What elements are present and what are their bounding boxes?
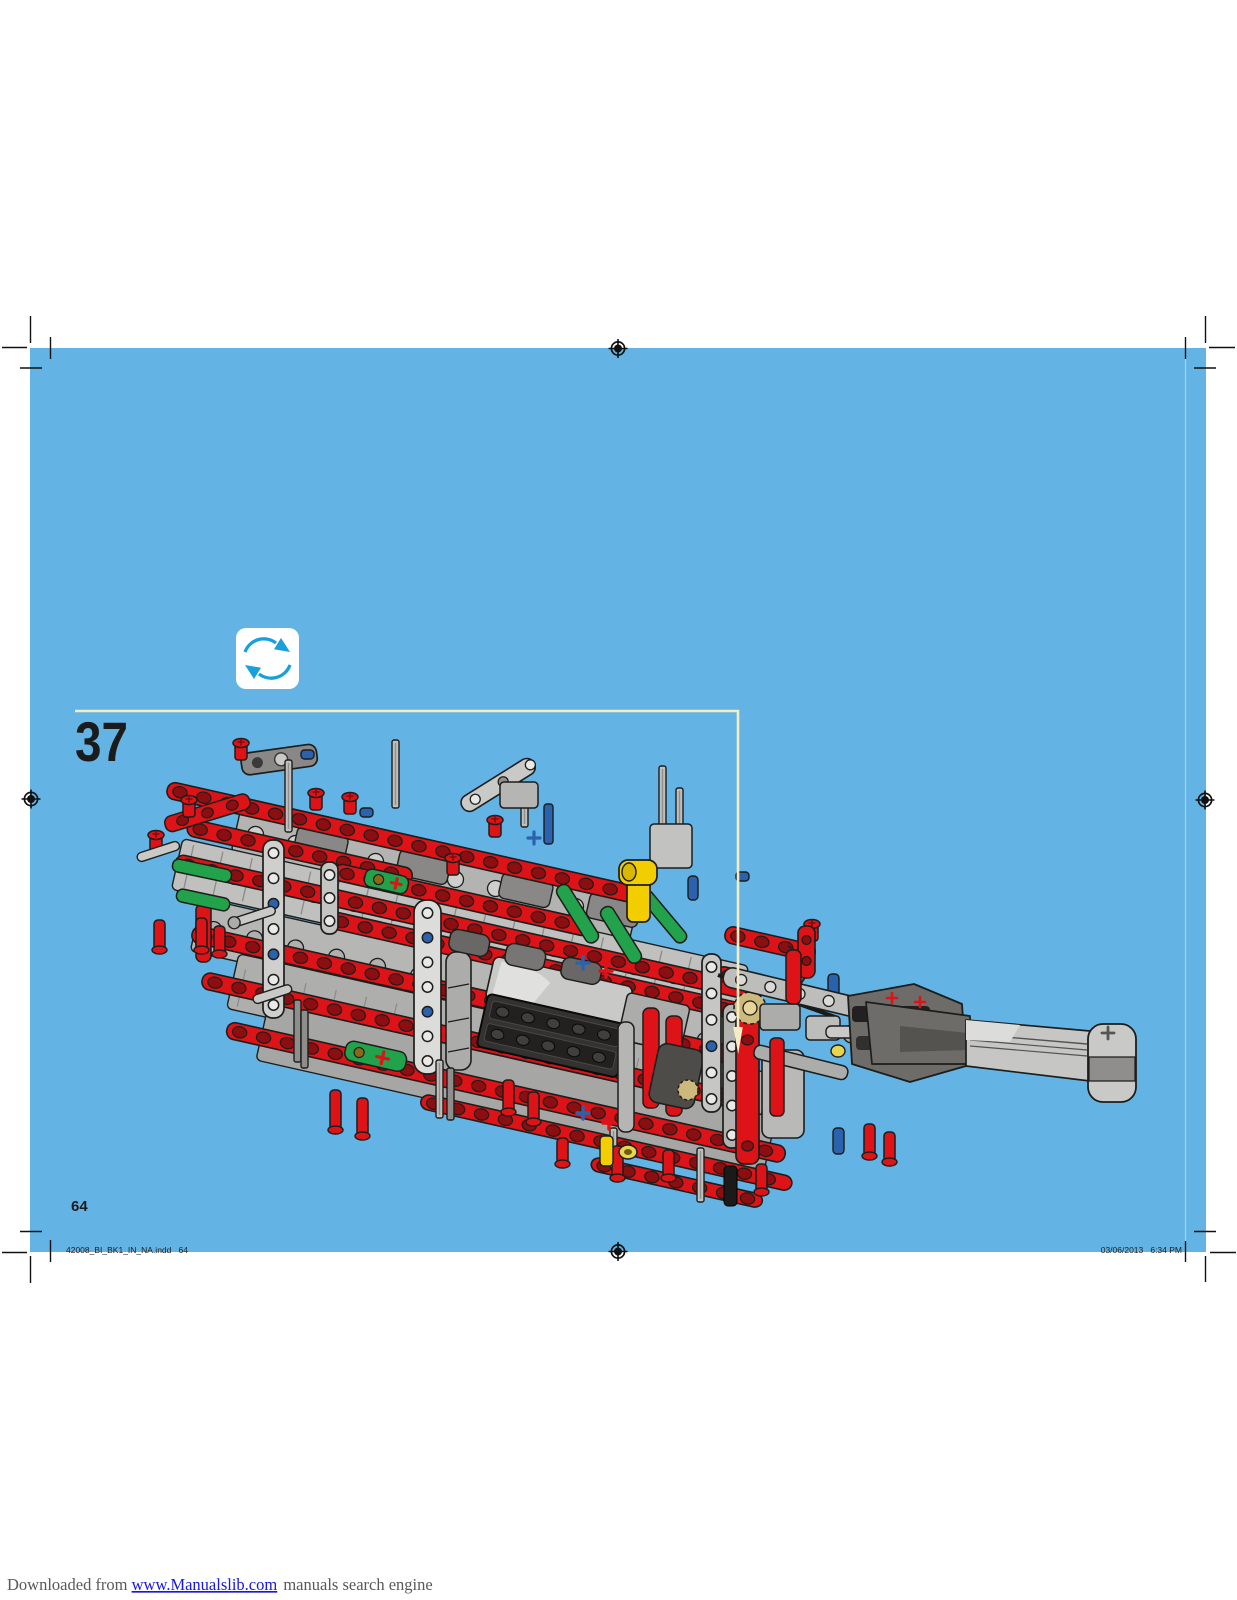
svg-text:37: 37 — [75, 710, 128, 773]
svg-text:42008_BI_BK1_IN_NA.indd 64: 42008_BI_BK1_IN_NA.indd 64 — [66, 1245, 188, 1255]
svg-text:03/06/2013 6:34 PM: 03/06/2013 6:34 PM — [1101, 1245, 1182, 1255]
svg-text:64: 64 — [71, 1198, 88, 1215]
svg-text:Downloaded from www.Manualslib: Downloaded from www.Manualslib.com manua… — [7, 1575, 433, 1594]
